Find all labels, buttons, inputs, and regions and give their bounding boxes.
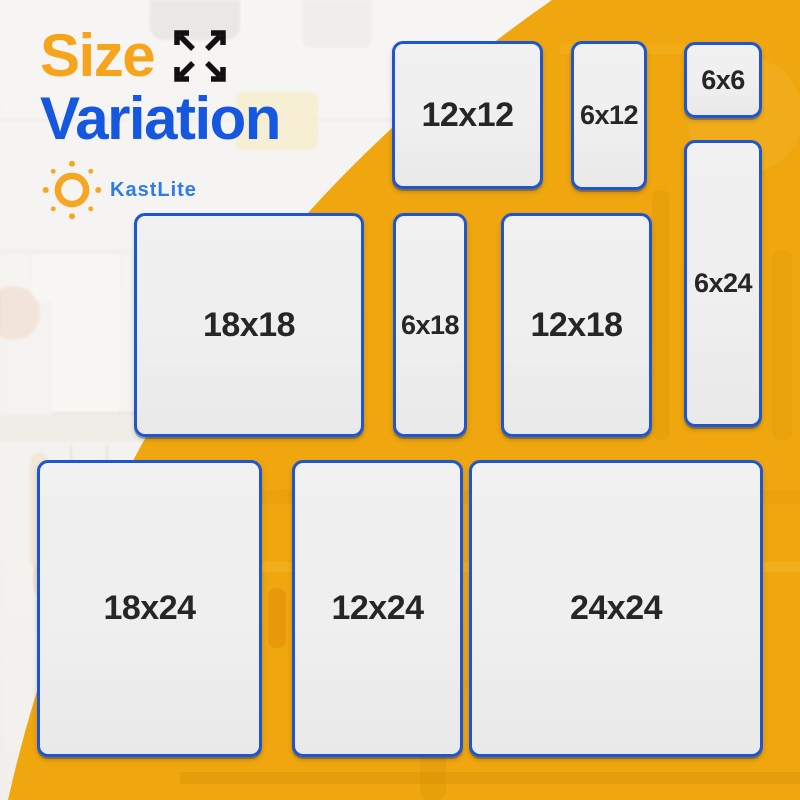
size-box-18x18: 18x18	[134, 213, 364, 437]
size-box-12x18: 12x18	[501, 213, 652, 437]
infographic-canvas: Size Variation Kast	[0, 0, 800, 800]
size-box-24x24: 24x24	[469, 460, 763, 757]
size-label: 6x6	[701, 65, 745, 96]
size-box-6x12: 6x12	[571, 41, 647, 190]
size-label: 18x24	[103, 589, 195, 628]
size-box-12x24: 12x24	[292, 460, 463, 757]
size-box-6x24: 6x24	[684, 140, 762, 427]
size-boxes-grid: 12x126x126x66x2418x186x1812x1818x2412x24…	[0, 0, 800, 800]
size-label: 12x18	[530, 306, 622, 345]
size-box-6x6: 6x6	[684, 42, 762, 118]
size-label: 6x12	[580, 100, 638, 131]
size-label: 18x18	[203, 306, 295, 345]
size-box-18x24: 18x24	[37, 460, 262, 757]
size-box-12x12: 12x12	[392, 41, 543, 189]
size-label: 24x24	[570, 589, 662, 628]
size-label: 6x18	[401, 310, 459, 341]
size-label: 6x24	[694, 268, 752, 299]
size-box-6x18: 6x18	[393, 213, 467, 437]
size-label: 12x24	[331, 589, 423, 628]
size-label: 12x12	[421, 96, 513, 135]
